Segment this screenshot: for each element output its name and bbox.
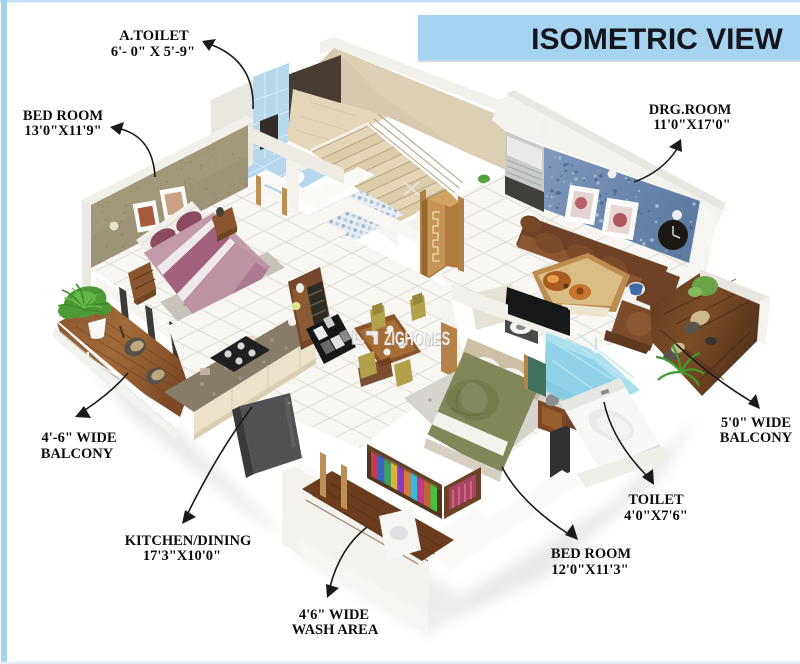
svg-text:5'0" WIDE: 5'0" WIDE <box>721 415 791 431</box>
svg-text:4'-6" WIDE: 4'-6" WIDE <box>41 430 116 446</box>
svg-text:ZIGHOMES: ZIGHOMES <box>384 329 450 350</box>
svg-text:BALCONY: BALCONY <box>720 430 793 446</box>
svg-text:17'3"X10'0": 17'3"X10'0" <box>143 548 221 564</box>
svg-text:DRG.ROOM: DRG.ROOM <box>649 102 732 118</box>
svg-text:WASH AREA: WASH AREA <box>292 622 379 638</box>
svg-text:4'0"X7'6": 4'0"X7'6" <box>624 508 688 524</box>
svg-text:KITCHEN/DINING: KITCHEN/DINING <box>125 533 252 549</box>
svg-text:13'0"X11'9": 13'0"X11'9" <box>24 123 101 139</box>
svg-text:ISOMETRIC VIEW: ISOMETRIC VIEW <box>531 23 783 56</box>
svg-text:TOILET: TOILET <box>628 492 684 508</box>
svg-text:4'6" WIDE: 4'6" WIDE <box>299 607 369 623</box>
svg-text:BED ROOM: BED ROOM <box>551 546 631 562</box>
svg-text:A.TOILET: A.TOILET <box>119 28 189 44</box>
svg-text:12'0"X11'3": 12'0"X11'3" <box>551 562 628 578</box>
svg-text:6'- 0" X 5'-9": 6'- 0" X 5'-9" <box>111 44 195 60</box>
svg-text:11'0"X17'0": 11'0"X17'0" <box>653 117 730 133</box>
svg-text:BED ROOM: BED ROOM <box>23 108 103 124</box>
svg-text:BALCONY: BALCONY <box>41 446 114 462</box>
